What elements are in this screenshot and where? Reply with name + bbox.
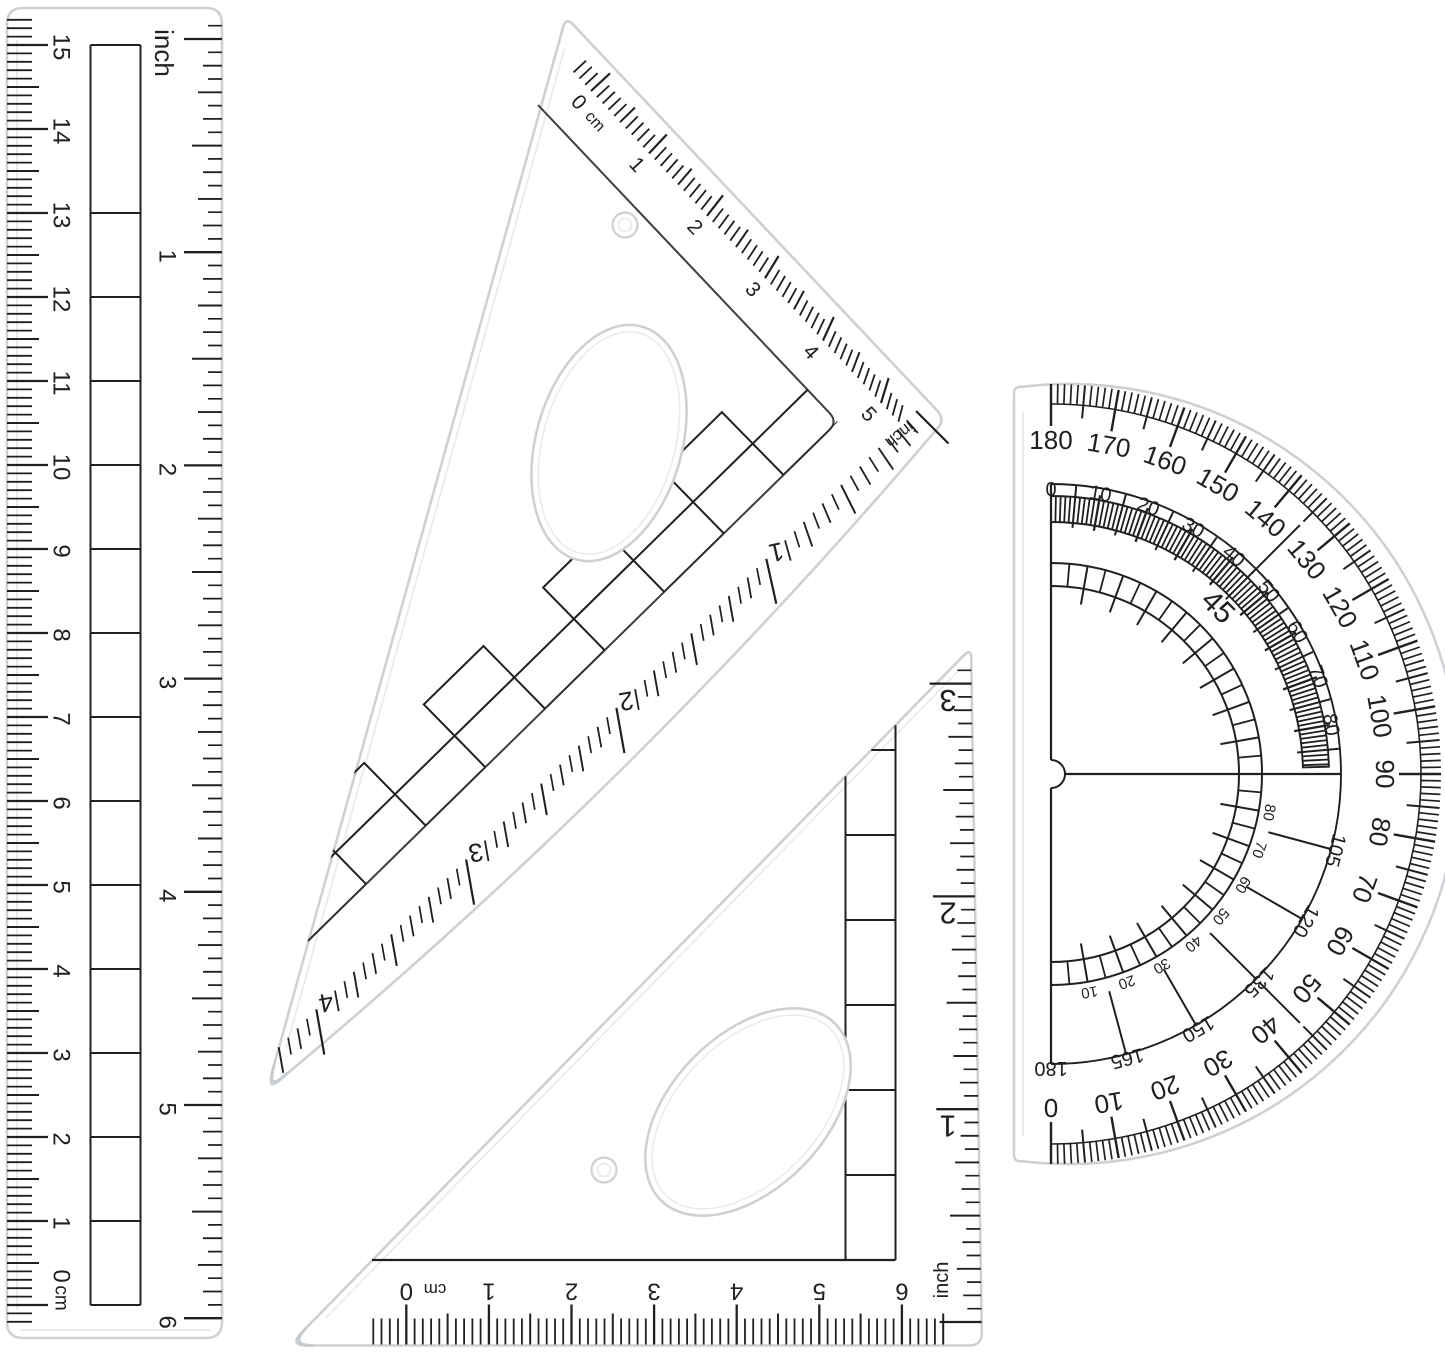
svg-text:cm: cm [424,1280,447,1299]
svg-text:inch: inch [931,1262,953,1299]
svg-text:3: 3 [154,676,181,689]
svg-text:4: 4 [48,964,75,977]
svg-text:2: 2 [48,1132,75,1145]
svg-text:180: 180 [1029,425,1072,455]
svg-text:6: 6 [895,1278,908,1305]
svg-text:2: 2 [939,896,956,931]
svg-text:8: 8 [48,628,75,641]
svg-text:10: 10 [48,454,75,481]
svg-text:3: 3 [48,1048,75,1061]
svg-text:14: 14 [48,118,75,145]
svg-text:0: 0 [400,1278,413,1305]
svg-text:80: 80 [1318,712,1344,738]
svg-text:cm: cm [50,1285,71,1310]
svg-text:2: 2 [154,463,181,476]
svg-text:0: 0 [1045,479,1056,501]
svg-text:11: 11 [48,371,75,396]
svg-text:4: 4 [730,1278,743,1305]
svg-text:2: 2 [565,1278,578,1305]
svg-text:0: 0 [48,1269,75,1282]
svg-text:9: 9 [48,544,75,557]
svg-text:0: 0 [1044,1093,1058,1123]
svg-text:5: 5 [48,880,75,893]
svg-text:80: 80 [1363,815,1398,849]
svg-text:5: 5 [813,1278,826,1305]
svg-text:13: 13 [48,202,75,229]
svg-text:12: 12 [48,286,75,313]
svg-text:1: 1 [154,250,181,263]
svg-text:3: 3 [939,683,956,718]
svg-text:4: 4 [154,889,181,902]
svg-text:3: 3 [647,1278,660,1305]
svg-text:7: 7 [48,712,75,725]
svg-text:1: 1 [939,1108,956,1143]
svg-text:15: 15 [48,34,75,61]
svg-text:1: 1 [482,1278,495,1305]
svg-text:80: 80 [1259,803,1279,822]
svg-text:1: 1 [48,1216,75,1229]
svg-text:10: 10 [1087,482,1113,508]
svg-text:10: 10 [1080,982,1099,1002]
svg-text:inch: inch [149,29,179,77]
svg-text:90: 90 [1370,760,1400,789]
svg-text:180: 180 [1034,1057,1067,1079]
svg-text:6: 6 [48,796,75,809]
svg-text:6: 6 [154,1316,181,1329]
svg-text:5: 5 [154,1102,181,1115]
svg-text:10: 10 [1092,1086,1126,1121]
